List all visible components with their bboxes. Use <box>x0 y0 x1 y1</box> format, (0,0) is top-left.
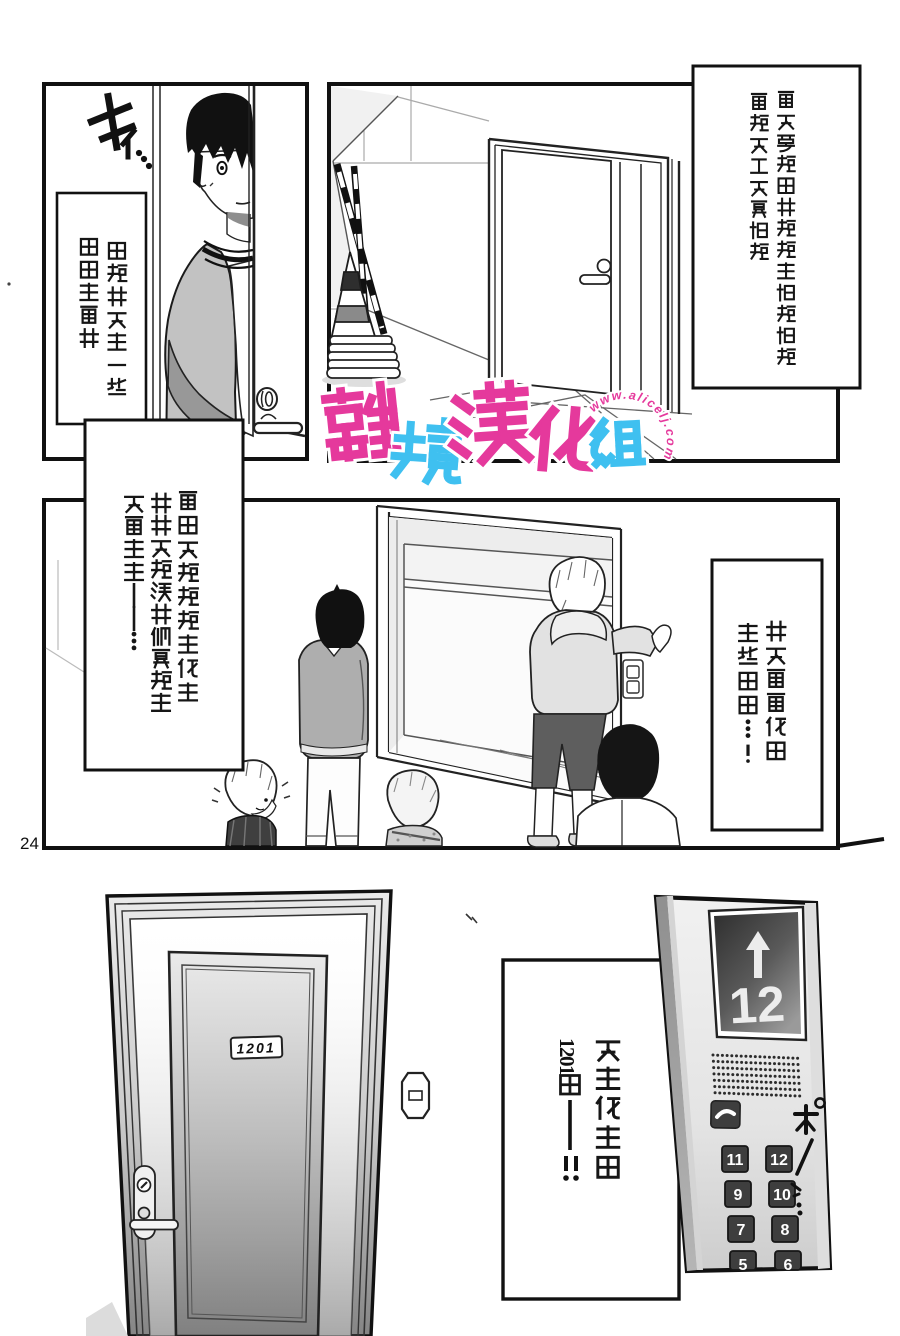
svg-text:8: 8 <box>781 1222 790 1239</box>
svg-text:5: 5 <box>739 1257 748 1274</box>
svg-text:7: 7 <box>737 1222 746 1239</box>
svg-text:9: 9 <box>734 1187 743 1204</box>
svg-text:1201: 1201 <box>555 1038 579 1075</box>
svg-text:12: 12 <box>728 976 786 1035</box>
svg-text:11: 11 <box>727 1152 744 1169</box>
svg-text:6: 6 <box>784 1257 793 1274</box>
svg-text:24: 24 <box>20 834 39 853</box>
svg-text:1201: 1201 <box>236 1039 276 1056</box>
svg-text:10: 10 <box>773 1187 791 1204</box>
svg-text:12: 12 <box>770 1152 788 1169</box>
